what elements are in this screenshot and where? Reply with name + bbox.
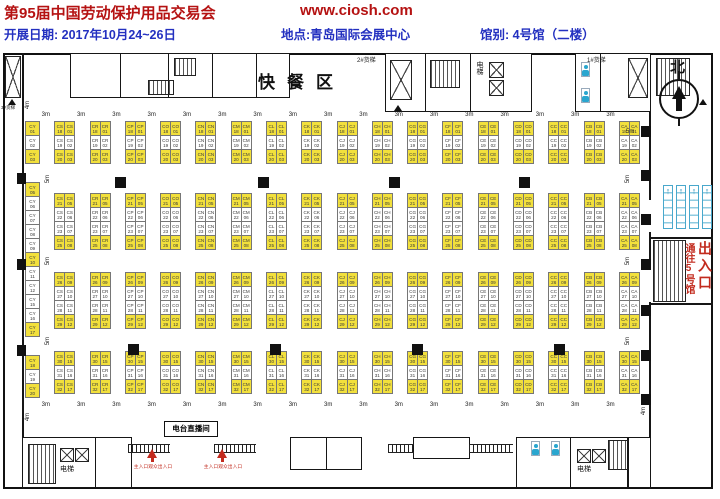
booth-row: CS19CS02 [54, 135, 75, 150]
booth-row: CF32CF17 [442, 379, 463, 394]
booth-row: CM22CM06 [231, 207, 252, 222]
booth-column-cy: CY01CY02CY03CY05CY06CY07CY08CY09CY10CY11… [25, 122, 40, 398]
booth-row: CP20CP03 [125, 149, 146, 164]
booth-cell: CD17 [523, 379, 534, 394]
booth-row: CE28CE11 [478, 300, 499, 315]
booth-cell: CY01 [25, 121, 40, 136]
booth-cell: CG10 [417, 286, 428, 301]
freight-elevator-3-shaft-icon [5, 56, 21, 98]
booth-row: CR30CR15 [90, 351, 111, 366]
dim-label: 3m [112, 112, 120, 118]
main-entrance-label: 主入口观众出入口 [127, 463, 179, 470]
booth-row: CN23CN07 [195, 221, 216, 236]
booth-cell: CE17 [488, 379, 499, 394]
booth-cell: CA07 [629, 221, 640, 236]
booth-cell: CB15 [594, 351, 605, 366]
aisle-spacer [231, 164, 252, 194]
booth-cell: CK10 [311, 286, 322, 301]
booth-cell: CM10 [241, 286, 252, 301]
booth-cell: CJ09 [347, 272, 358, 287]
booth-cell: CK12 [311, 314, 322, 329]
booth-row: CN26CN09 [195, 272, 216, 287]
booth-cell: CB08 [594, 235, 605, 250]
booth-row: CD29CD12 [513, 314, 534, 329]
booth-row: CA30CA15 [619, 351, 640, 366]
booth-cell: CG07 [417, 221, 428, 236]
booth-cell: CC10 [558, 286, 569, 301]
booth-row: CN20CN03 [195, 149, 216, 164]
elevator-label-bottom-right: 电梯 [577, 464, 591, 474]
dim-label: 3m [324, 402, 332, 408]
booth-cell: CR08 [100, 235, 111, 250]
booth-cell: CA12 [629, 314, 640, 329]
booth-row: CM23CM07 [231, 221, 252, 236]
freight-elevator-1-shaft-icon [628, 58, 648, 98]
page-header-line2: 开展日期: 2017年10月24~26日 地点:青岛国际会展中心 馆别: 4号馆… [4, 24, 176, 43]
aisle-spacer [478, 164, 499, 194]
booth-row: CH29CH12 [372, 314, 393, 329]
bottom-middle-room [413, 437, 470, 459]
booth-cell: CD06 [523, 207, 534, 222]
dim-label: 3m [183, 402, 191, 408]
booth-cell: CC09 [558, 272, 569, 287]
booth-cell: CY15 [25, 294, 40, 309]
booth-row: CG29CG12 [407, 314, 428, 329]
booth-cell: CM06 [241, 207, 252, 222]
booth-cell: CJ15 [347, 351, 358, 366]
booth-cell: CD07 [523, 221, 534, 236]
dim-label: 3m [606, 402, 614, 408]
booth-row: CL26CL09 [266, 272, 287, 287]
booth-cell: CJ16 [347, 365, 358, 380]
booth-row: CP32CP17 [125, 379, 146, 394]
dim-label: 4m [25, 101, 31, 109]
booth-cell: CO15 [170, 351, 181, 366]
booth-cell: CN10 [205, 286, 216, 301]
dim-label: 3m [253, 112, 261, 118]
booth-cell: CN15 [205, 351, 216, 366]
booth-row: CR32CR17 [90, 379, 111, 394]
booth-row: CC26CC09 [548, 272, 569, 287]
booth-cell: CD11 [523, 300, 534, 315]
booth-cell: CD16 [523, 365, 534, 380]
booth-cell: CD03 [523, 149, 534, 164]
booth-cell: CR16 [100, 365, 111, 380]
dim-label: 3m [289, 112, 297, 118]
pillar [641, 394, 651, 405]
aisle-spacer [301, 164, 322, 194]
elevator-shaft-icon [489, 62, 504, 78]
booth-cell: CF09 [452, 272, 463, 287]
booth-cell: CR03 [100, 149, 111, 164]
booth-column-ce: CE18CE01CE19CE02CE20CE03CE21CE05CE22CE06… [478, 122, 499, 394]
booth-cell: CB03 [594, 149, 605, 164]
booth-row: CG27CG10 [407, 286, 428, 301]
dim-label: 3m [359, 402, 367, 408]
booth-row: CM26CM09 [231, 272, 252, 287]
booth-row: CC31CC16 [548, 365, 569, 380]
pillar [641, 259, 651, 270]
booth-row: CR28CR11 [90, 300, 111, 315]
pillar [17, 259, 26, 270]
booth-row: CR27CR10 [90, 286, 111, 301]
booth-cell: CY06 [25, 196, 40, 211]
booth-cell: CH11 [382, 300, 393, 315]
booth-cell: CF01 [452, 121, 463, 136]
pillar [412, 344, 423, 355]
booth-cell: CM11 [241, 300, 252, 315]
aisle-spacer [90, 329, 111, 352]
booth-cell: CO11 [170, 300, 181, 315]
aisle-spacer [266, 250, 287, 273]
booth-row: CL29CL12 [266, 314, 287, 329]
booth-row: CJ20CJ03 [337, 149, 358, 164]
booth-row: CC23CC07 [548, 221, 569, 236]
room-divider [120, 53, 121, 98]
dim-label: 3m [606, 112, 614, 118]
pillar [115, 177, 126, 188]
booth-cell: CN06 [205, 207, 216, 222]
booth-cell: CN03 [205, 149, 216, 164]
freight-elevator-3-label: 3#货梯 [1, 105, 15, 111]
booth-cell: CY18 [25, 355, 40, 370]
booth-cell: CJ10 [347, 286, 358, 301]
elevator-shaft-icon [577, 449, 591, 463]
booth-row: CF30CF15 [442, 351, 463, 366]
booth-row: CC27CC10 [548, 286, 569, 301]
dim-label: 3m [42, 112, 50, 118]
booth-cell: CY05 [25, 182, 40, 197]
booth-cell: CS05 [64, 193, 75, 208]
booth-row: CB31CB16 [584, 365, 605, 380]
booth-row: CM20CM03 [231, 149, 252, 164]
dim-label: 5m [626, 129, 634, 135]
booth-cell: CP03 [135, 149, 146, 164]
booth-cell: CH16 [382, 365, 393, 380]
booth-row: CL28CL11 [266, 300, 287, 315]
pillar [258, 177, 269, 188]
booth-cell: CY03 [25, 149, 40, 164]
booth-row: CJ30CJ15 [337, 351, 358, 366]
booth-cell: CE02 [488, 135, 499, 150]
dim-label: 3m [359, 112, 367, 118]
booth-row: CS28CS11 [54, 300, 75, 315]
booth-row: CJ29CJ12 [337, 314, 358, 329]
booth-row: CS32CS17 [54, 379, 75, 394]
booth-cell: CS17 [64, 379, 75, 394]
aisle-spacer [195, 329, 216, 352]
dim-label: 3m [465, 402, 473, 408]
booth-row: CH25CH08 [372, 235, 393, 250]
booth-row: CD31CD16 [513, 365, 534, 380]
booth-row: CL27CL10 [266, 286, 287, 301]
booth-cell: CA05 [629, 193, 640, 208]
pillar [389, 177, 400, 188]
booth-cell: CG08 [417, 235, 428, 250]
booth-row: CE20CE03 [478, 149, 499, 164]
dim-label: 3m [112, 402, 120, 408]
booth-row: CJ23CJ07 [337, 221, 358, 236]
booth-cell: CO07 [170, 221, 181, 236]
bottom-corner-room [628, 437, 651, 488]
booth-row: CJ31CJ16 [337, 365, 358, 380]
corridor-wall [651, 237, 713, 239]
aisle-spacer [90, 250, 111, 273]
booth-cell: CF15 [452, 351, 463, 366]
booth-row: CN19CN02 [195, 135, 216, 150]
booth-row: CL31CL16 [266, 365, 287, 380]
pillar [17, 345, 26, 356]
booth-row: CO30CO15 [160, 351, 181, 366]
booth-grid: CY01CY02CY03CY05CY06CY07CY08CY09CY10CY11… [25, 122, 640, 398]
booth-row: CA23CA07 [619, 221, 640, 236]
booth-row: CO27CO10 [160, 286, 181, 301]
booth-cell: CE12 [488, 314, 499, 329]
booth-cell: CB09 [594, 272, 605, 287]
elevator-shaft-icon [75, 448, 89, 462]
booth-row: CE23CE07 [478, 221, 499, 236]
freight-elevator-2-label: 2#货梯 [357, 55, 376, 64]
fast-food-area-label: 快餐区 [258, 68, 345, 93]
booth-row: CK18CK01 [301, 121, 322, 136]
booth-cell: CM17 [241, 379, 252, 394]
aisle-spacer [301, 250, 322, 273]
room-divider [470, 53, 471, 112]
booth-cell: CB17 [594, 379, 605, 394]
booth-row: CO32CO17 [160, 379, 181, 394]
booth-row: CH28CH11 [372, 300, 393, 315]
booth-row: CG31CG16 [407, 365, 428, 380]
booth-row: CO19CO02 [160, 135, 181, 150]
booth-cell: CO12 [170, 314, 181, 329]
booth-cell: CE16 [488, 365, 499, 380]
booth-cell: CP17 [135, 379, 146, 394]
booth-row: CC18CC01 [548, 121, 569, 136]
booth-cell: CR10 [100, 286, 111, 301]
pillar [270, 344, 281, 355]
stairs-hatch [174, 58, 196, 76]
booth-cell: CE09 [488, 272, 499, 287]
booth-row: CF20CF03 [442, 149, 463, 164]
entrance-arrow-icon [221, 457, 224, 462]
aisle-spacer [301, 329, 322, 352]
north-arrow-icon [676, 98, 682, 111]
booth-cell: CJ03 [347, 149, 358, 164]
booth-row: CF29CF12 [442, 314, 463, 329]
booth-cell: CJ12 [347, 314, 358, 329]
booth-cell: CS01 [64, 121, 75, 136]
stairs-hatch [28, 444, 56, 484]
booth-row: CR22CR06 [90, 207, 111, 222]
restroom-icon [531, 441, 540, 456]
booth-row: CP31CP16 [125, 365, 146, 380]
booth-row: CL32CL17 [266, 379, 287, 394]
dim-label: 3m [430, 402, 438, 408]
booth-row: CE29CE12 [478, 314, 499, 329]
booth-cell: CH02 [382, 135, 393, 150]
booth-cell: CO17 [170, 379, 181, 394]
booth-cell: CO08 [170, 235, 181, 250]
booth-cell: CK05 [311, 193, 322, 208]
booth-row: CL23CL07 [266, 221, 287, 236]
booth-row: CS31CS16 [54, 365, 75, 380]
booth-row: CG28CG11 [407, 300, 428, 315]
booth-cell: CC11 [558, 300, 569, 315]
booth-row: CE22CE06 [478, 207, 499, 222]
booth-cell: CG05 [417, 193, 428, 208]
booth-row: CD18CD01 [513, 121, 534, 136]
fair-title: 第95届中国劳动保护用品交易会 [4, 5, 216, 22]
booth-row: CG18CG01 [407, 121, 428, 136]
booth-row: CF27CF10 [442, 286, 463, 301]
door-marker-icon [699, 99, 707, 105]
booth-row: CG25CG08 [407, 235, 428, 250]
booth-cell: CH07 [382, 221, 393, 236]
booth-cell: CG01 [417, 121, 428, 136]
booth-cell: CA03 [629, 149, 640, 164]
room-divider [570, 437, 571, 488]
booth-cell: CR07 [100, 221, 111, 236]
booth-cell: CO10 [170, 286, 181, 301]
booth-cell: CH17 [382, 379, 393, 394]
aisle-spacer [266, 164, 287, 194]
booth-cell: CL02 [276, 135, 287, 150]
aisle-spacer [125, 250, 146, 273]
booth-row: CF25CF08 [442, 235, 463, 250]
booth-cell: CS07 [64, 221, 75, 236]
booth-row: CF19CF02 [442, 135, 463, 150]
booth-cell: CE06 [488, 207, 499, 222]
booth-column-cr: CR18CR01CR19CR02CR20CR03CR21CR05CR22CR06… [90, 122, 111, 394]
aisle-spacer [442, 329, 463, 352]
aisle-spacer [54, 329, 75, 352]
booth-cell: CL08 [276, 235, 287, 250]
booth-cell: CJ02 [347, 135, 358, 150]
booth-cell: CA09 [629, 272, 640, 287]
booth-cell: CK16 [311, 365, 322, 380]
booth-row: CN21CN05 [195, 193, 216, 208]
aisle-spacer [25, 164, 40, 183]
dim-label: 5m [625, 337, 631, 345]
booth-row: CK22CK06 [301, 207, 322, 222]
entrance-doors [469, 444, 513, 453]
exit-label: 出入口 [695, 241, 715, 292]
booth-cell: CO16 [170, 365, 181, 380]
booth-cell: CA11 [629, 300, 640, 315]
booth-row: CR20CR03 [90, 149, 111, 164]
booth-row: CA19CA02 [619, 135, 640, 150]
stairs-hatch [430, 60, 460, 88]
booth-row: CG32CG17 [407, 379, 428, 394]
booth-row: CS25CS08 [54, 235, 75, 250]
freight-elevator-2-shaft-icon [390, 60, 412, 100]
dim-label: 3m [77, 112, 85, 118]
aisle-spacer [478, 250, 499, 273]
booth-cell: CF02 [452, 135, 463, 150]
room-divider [326, 437, 327, 470]
dim-label: 3m [218, 112, 226, 118]
booth-row: CS21CS05 [54, 193, 75, 208]
booth-cell: CE10 [488, 286, 499, 301]
booth-cell: CL10 [276, 286, 287, 301]
room-divider [425, 53, 426, 112]
booth-row: CF22CF06 [442, 207, 463, 222]
corridor-wall [651, 303, 713, 305]
booth-cell: CS12 [64, 314, 75, 329]
booth-row: CS20CS03 [54, 149, 75, 164]
dim-label: 3m [536, 112, 544, 118]
booth-cell: CM02 [241, 135, 252, 150]
booth-row: CD32CD17 [513, 379, 534, 394]
booth-row: CB29CB12 [584, 314, 605, 329]
elevator-shaft-icon [60, 448, 74, 462]
booth-row: CR26CR09 [90, 272, 111, 287]
booth-row: CB19CB02 [584, 135, 605, 150]
aisle-spacer [54, 164, 75, 194]
booth-row: CJ25CJ08 [337, 235, 358, 250]
booth-row: CB20CB03 [584, 149, 605, 164]
booth-cell: CM16 [241, 365, 252, 380]
booth-row: CH21CH05 [372, 193, 393, 208]
fair-hall: 馆别: 4号馆（二楼） [480, 24, 595, 43]
booth-row: CC29CC12 [548, 314, 569, 329]
booth-cell: CB16 [594, 365, 605, 380]
booth-row: CP27CP10 [125, 286, 146, 301]
booth-cell: CR05 [100, 193, 111, 208]
booth-row: CL20CL03 [266, 149, 287, 164]
booth-row: CJ21CJ05 [337, 193, 358, 208]
dim-label: 5m [45, 257, 51, 265]
booth-row: CC25CC08 [548, 235, 569, 250]
booth-cell: CA08 [629, 235, 640, 250]
booth-row: CB21CB05 [584, 193, 605, 208]
dim-label: 3m [253, 402, 261, 408]
dim-label: 5m [625, 257, 631, 265]
booth-row: CC20CC03 [548, 149, 569, 164]
booth-row: CO25CO08 [160, 235, 181, 250]
aisle-spacer [548, 164, 569, 194]
page-header-line1: 第95届中国劳动保护用品交易会 www.ciosh.com [4, 2, 216, 23]
dim-label: 3m [289, 402, 297, 408]
booth-cell: CJ06 [347, 207, 358, 222]
booth-cell: CY11 [25, 266, 40, 281]
booth-row: CG20CG03 [407, 149, 428, 164]
booth-cell: CP11 [135, 300, 146, 315]
booth-cell: CM12 [241, 314, 252, 329]
booth-cell: CE15 [488, 351, 499, 366]
aisle-spacer [372, 329, 393, 352]
booth-row: CR29CR12 [90, 314, 111, 329]
booth-cell: CY07 [25, 210, 40, 225]
exhibition-floor-plan-page: 第95届中国劳动保护用品交易会 www.ciosh.com 开展日期: 2017… [0, 0, 720, 499]
booth-row: CK30CK15 [301, 351, 322, 366]
restroom-icon [581, 88, 590, 103]
booth-row: CH19CH02 [372, 135, 393, 150]
booth-cell: CP07 [135, 221, 146, 236]
booth-cell: CN11 [205, 300, 216, 315]
booth-row: CP18CP01 [125, 121, 146, 136]
pillar [641, 126, 651, 137]
booth-cell: CC07 [558, 221, 569, 236]
escalator-icon: ↑ [689, 185, 699, 229]
booth-cell: CK02 [311, 135, 322, 150]
escalator-icon: ↑ [702, 185, 712, 229]
pillar [128, 344, 139, 355]
booth-cell: CK06 [311, 207, 322, 222]
booth-row: CJ32CJ17 [337, 379, 358, 394]
booth-row: CK32CK17 [301, 379, 322, 394]
booth-row: CS26CS09 [54, 272, 75, 287]
